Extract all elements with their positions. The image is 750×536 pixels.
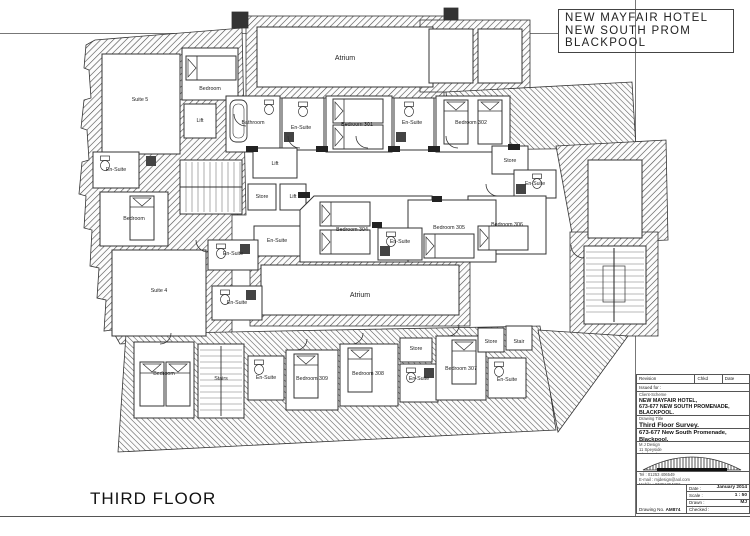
contact-block: Tel : 01253 406549 E-mail : mjdesign@aol… [637,472,749,485]
room-label: Store [410,346,423,352]
drawing-no: Drawing No. AM874 [639,507,684,512]
floor-label: THIRD FLOOR [90,489,216,509]
revision-row: Revision Chkd Date [637,375,749,384]
room-label: En-Suite [291,125,311,131]
room-label: Bedroom 308 [352,371,384,377]
room-label: Bedroom 304 [336,227,368,233]
room-label: En-Suite [267,238,287,244]
room-label: En-Suite [227,300,247,306]
drawing-sheet: Atrium Bedroom Suite 5 Lift Bathroom En-… [0,0,750,536]
room-label: En-Suite [525,181,545,187]
room-label: En-Suite [106,167,126,173]
room-label: En-Suite [390,239,410,245]
room-label: Atrium [350,292,370,299]
date-value: January 2014 [717,485,747,491]
room-label: Bedroom 309 [296,376,328,382]
room-label: En-Suite [402,120,422,126]
project-title-line2: NEW SOUTH PROM [565,25,733,38]
chkd-label: Chkd [695,375,722,383]
room-label: Store [256,194,269,200]
drawn-label: Drawn : [689,500,705,505]
room-label: Store [485,339,498,345]
room-label: Bedroom 301 [341,122,373,128]
drawn-value: MJ [740,500,747,506]
date-label: Date : [689,486,701,491]
scale-label: Scale : [689,493,703,498]
checked-field: Checked : [687,507,749,513]
issue-grid: Drawing No. AM874 Date : January 2014 Sc… [637,485,749,513]
room-label: Bathroom [242,120,266,126]
room-label: Suite 4 [151,288,168,294]
date-col-label: Date [723,375,749,383]
drawing-no-value: AM874 [666,507,681,512]
room-label: En-Suite [497,377,517,383]
room-label: Suite 5 [132,97,149,103]
drawn-field: Drawn : MJ [687,500,749,507]
room-label: Bedroom 302 [455,120,487,126]
room-label: Bedroom 306 [491,222,523,228]
date-field: Date : January 2014 [687,485,749,492]
drawing-title-block: Drawing Title Third Floor Survey. [637,416,749,429]
client-scheme-block: Client-Scheme NEW MAYFAIR HOTEL, 673-677… [637,392,749,416]
revision-label: Revision [637,375,695,383]
room-label: Lift [196,118,204,124]
drawing-title-value: Third Floor Survey. [639,422,747,429]
title-block: Revision Chkd Date Issued for : Client-S… [636,374,750,514]
firm-logo [637,454,749,472]
checked-label: Checked : [689,507,709,512]
project-title-line3: BLACKPOOL [565,37,733,50]
room-label: En-Suite [223,251,243,257]
issued-for-row: Issued for : [637,384,749,392]
scale-field: Scale : 1 : 50 [687,492,749,499]
room-label: Stair [514,339,525,345]
room-label: Stairs [214,376,228,382]
room-label: Bedroom 307 [445,366,477,372]
room-label: Store [504,158,517,164]
firm-block: M J Design 11 Speyside Blackpool FY4 2BS [637,442,749,454]
room-label: Bedroom 305 [433,225,465,231]
room-label: Lift [289,194,297,200]
room-label: Atrium [335,55,355,62]
room-label: Bedroom [123,216,145,222]
room-label: En-Suite [409,376,429,382]
room-label: Bedroom [199,86,221,92]
room-label: Bedroom [153,371,175,377]
address-block: 673-677 New South Promenade, Blackpool. [637,429,749,442]
address-line: 673-677 New South Promenade, Blackpool. [639,430,747,442]
project-title-line1: NEW MAYFAIR HOTEL [565,12,733,25]
room-label: En-Suite [256,375,276,381]
scale-value: 1 : 50 [735,493,747,499]
arch-logo-icon [637,454,747,472]
room-label: Lift [271,161,279,167]
drawing-no-label: Drawing No. [639,507,664,512]
project-title-box: NEW MAYFAIR HOTEL NEW SOUTH PROM BLACKPO… [558,9,734,53]
